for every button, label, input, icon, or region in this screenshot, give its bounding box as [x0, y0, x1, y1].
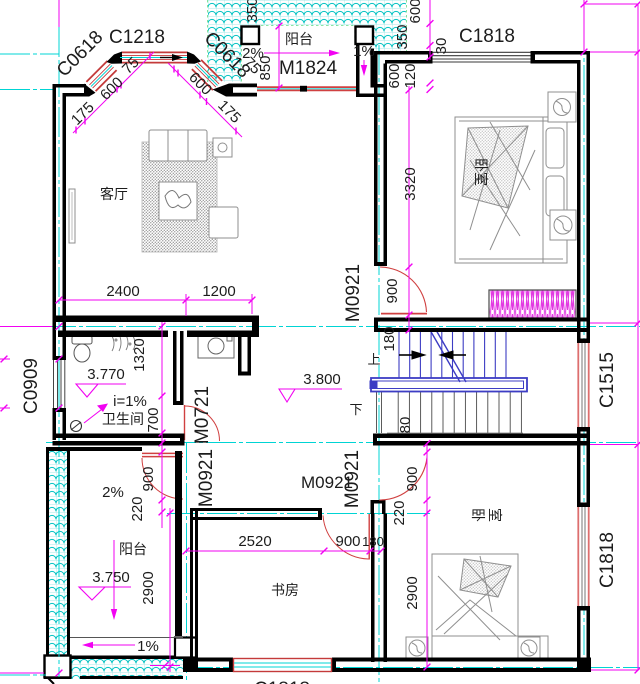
svg-text:书房: 书房	[271, 582, 299, 598]
svg-text:1200: 1200	[202, 283, 235, 300]
svg-text:1%: 1%	[353, 43, 375, 60]
svg-text:卫生间: 卫生间	[102, 411, 144, 427]
svg-text:M1824: M1824	[279, 58, 338, 79]
svg-text:C1818: C1818	[254, 679, 310, 684]
svg-text:i=1%: i=1%	[113, 393, 147, 410]
svg-text:3.750: 3.750	[92, 569, 130, 586]
svg-text:120: 120	[402, 63, 419, 88]
svg-text:350: 350	[244, 0, 261, 23]
svg-text:阳台: 阳台	[119, 541, 147, 557]
svg-text:卧室: 卧室	[473, 158, 489, 186]
svg-text:2400: 2400	[106, 283, 139, 300]
svg-text:M0721: M0721	[192, 386, 213, 444]
svg-text:900: 900	[384, 278, 401, 303]
svg-text:2900: 2900	[140, 571, 157, 604]
svg-text:350: 350	[394, 24, 411, 49]
svg-text:2%: 2%	[102, 484, 124, 501]
svg-text:180: 180	[381, 326, 398, 351]
svg-text:700: 700	[145, 407, 162, 432]
svg-text:900: 900	[335, 533, 360, 550]
svg-text:220: 220	[129, 496, 146, 521]
svg-text:2900: 2900	[404, 576, 421, 609]
svg-text:阳台: 阳台	[285, 31, 313, 47]
svg-text:600: 600	[407, 0, 424, 24]
svg-text:C1515: C1515	[597, 352, 618, 408]
svg-text:900: 900	[404, 466, 421, 491]
svg-text:30: 30	[433, 38, 450, 55]
svg-text:M0921: M0921	[342, 450, 363, 508]
svg-text:2%: 2%	[242, 45, 264, 62]
svg-text:下: 下	[349, 402, 362, 417]
svg-text:220: 220	[391, 500, 408, 525]
svg-text:3.800: 3.800	[303, 371, 341, 388]
svg-text:M0921: M0921	[343, 264, 364, 322]
svg-text:2520: 2520	[238, 533, 271, 550]
svg-text:1320: 1320	[131, 338, 148, 371]
svg-text:3320: 3320	[402, 167, 419, 200]
svg-text:卧: 卧	[470, 508, 486, 522]
svg-text:M0921: M0921	[196, 449, 217, 507]
svg-text:C1218: C1218	[109, 27, 165, 48]
svg-text:3.770: 3.770	[87, 366, 125, 383]
svg-text:室: 室	[487, 508, 503, 522]
svg-text:80: 80	[397, 417, 414, 434]
svg-text:900: 900	[140, 466, 157, 491]
svg-text:C1818: C1818	[459, 26, 515, 47]
svg-text:600: 600	[386, 63, 403, 88]
svg-text:C0909: C0909	[21, 358, 42, 414]
svg-text:上: 上	[367, 352, 380, 367]
svg-text:1%: 1%	[137, 638, 159, 655]
svg-text:客厅: 客厅	[100, 186, 128, 202]
svg-text:180: 180	[362, 534, 384, 549]
svg-text:C1818: C1818	[597, 532, 618, 588]
